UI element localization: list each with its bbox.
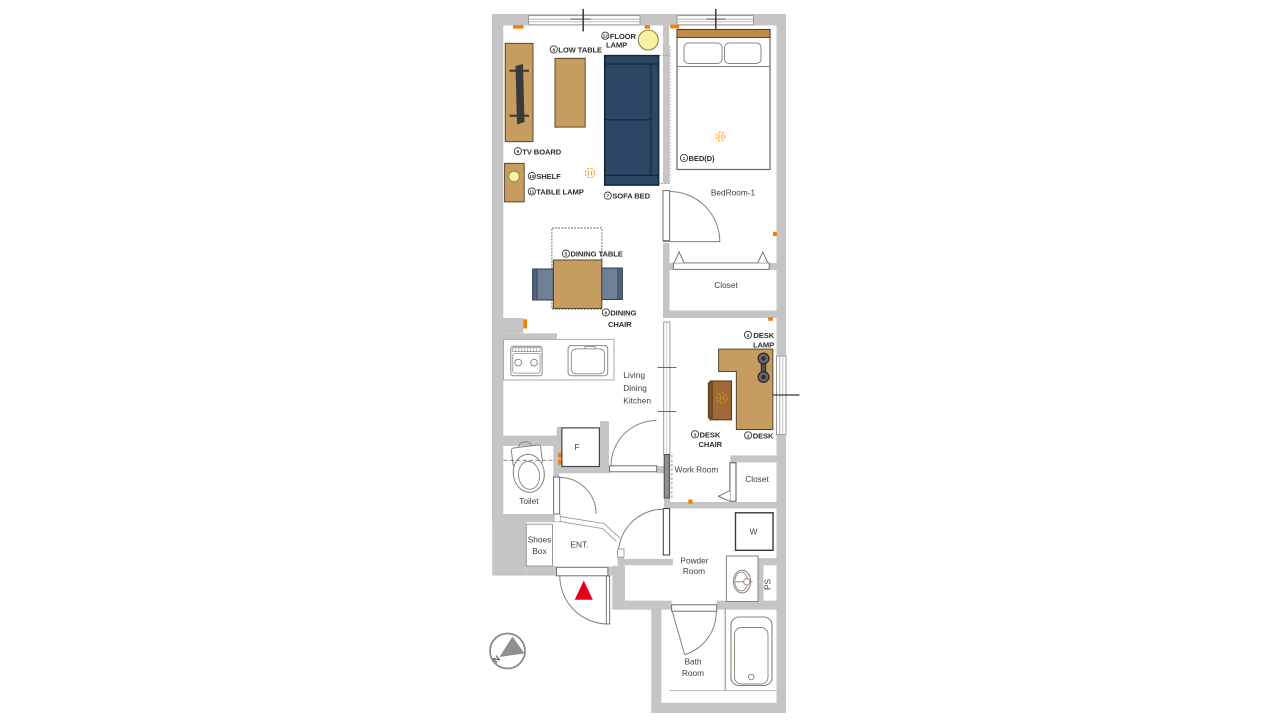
svg-text:4: 4 bbox=[747, 333, 750, 339]
svg-text:ENT.: ENT. bbox=[571, 539, 589, 549]
svg-text:11: 11 bbox=[529, 190, 534, 196]
svg-text:Kitchen: Kitchen bbox=[623, 395, 651, 405]
svg-text:9: 9 bbox=[516, 149, 519, 155]
svg-text:Living: Living bbox=[623, 370, 645, 380]
svg-text:LOW TABLE: LOW TABLE bbox=[558, 46, 602, 55]
svg-text:Box: Box bbox=[532, 546, 547, 556]
svg-text:Room: Room bbox=[683, 566, 705, 576]
svg-text:LAMP: LAMP bbox=[753, 341, 774, 350]
svg-text:6: 6 bbox=[604, 310, 607, 316]
svg-text:10: 10 bbox=[529, 174, 535, 180]
svg-text:Powder: Powder bbox=[680, 555, 708, 565]
svg-text:CHAIR: CHAIR bbox=[608, 320, 632, 329]
svg-text:SHELF: SHELF bbox=[536, 172, 561, 181]
svg-text:Dining: Dining bbox=[623, 383, 647, 393]
svg-text:W: W bbox=[750, 527, 758, 537]
svg-text:DESK: DESK bbox=[753, 432, 774, 441]
svg-text:DESK: DESK bbox=[753, 331, 774, 340]
svg-text:Closet: Closet bbox=[714, 280, 738, 290]
svg-text:2: 2 bbox=[747, 433, 750, 439]
svg-text:DINING: DINING bbox=[610, 309, 636, 318]
svg-text:Room: Room bbox=[682, 668, 704, 678]
svg-text:BedRoom-1: BedRoom-1 bbox=[711, 188, 756, 198]
svg-text:PS: PS bbox=[763, 579, 773, 591]
svg-text:Work Room: Work Room bbox=[675, 464, 719, 474]
svg-text:CHAIR: CHAIR bbox=[699, 440, 723, 449]
svg-text:FLOOR: FLOOR bbox=[610, 32, 637, 41]
svg-text:F: F bbox=[574, 442, 579, 452]
svg-text:1: 1 bbox=[683, 156, 686, 162]
svg-text:Closet: Closet bbox=[745, 474, 769, 484]
svg-text:DINING TABLE: DINING TABLE bbox=[571, 250, 623, 259]
svg-text:TABLE LAMP: TABLE LAMP bbox=[536, 188, 583, 197]
svg-text:12: 12 bbox=[603, 34, 609, 40]
svg-text:7: 7 bbox=[606, 194, 609, 200]
svg-text:Toilet: Toilet bbox=[519, 496, 539, 506]
svg-text:BED(D): BED(D) bbox=[689, 154, 716, 163]
svg-text:TV BOARD: TV BOARD bbox=[522, 147, 561, 156]
svg-text:3: 3 bbox=[694, 432, 697, 438]
svg-text:DESK: DESK bbox=[700, 430, 721, 439]
svg-text:8: 8 bbox=[552, 47, 555, 53]
svg-text:LAMP: LAMP bbox=[606, 41, 627, 50]
svg-text:5: 5 bbox=[565, 252, 568, 258]
svg-text:SOFA BED: SOFA BED bbox=[612, 192, 650, 201]
svg-text:Bath: Bath bbox=[684, 656, 701, 666]
svg-text:Shoes: Shoes bbox=[528, 535, 552, 545]
